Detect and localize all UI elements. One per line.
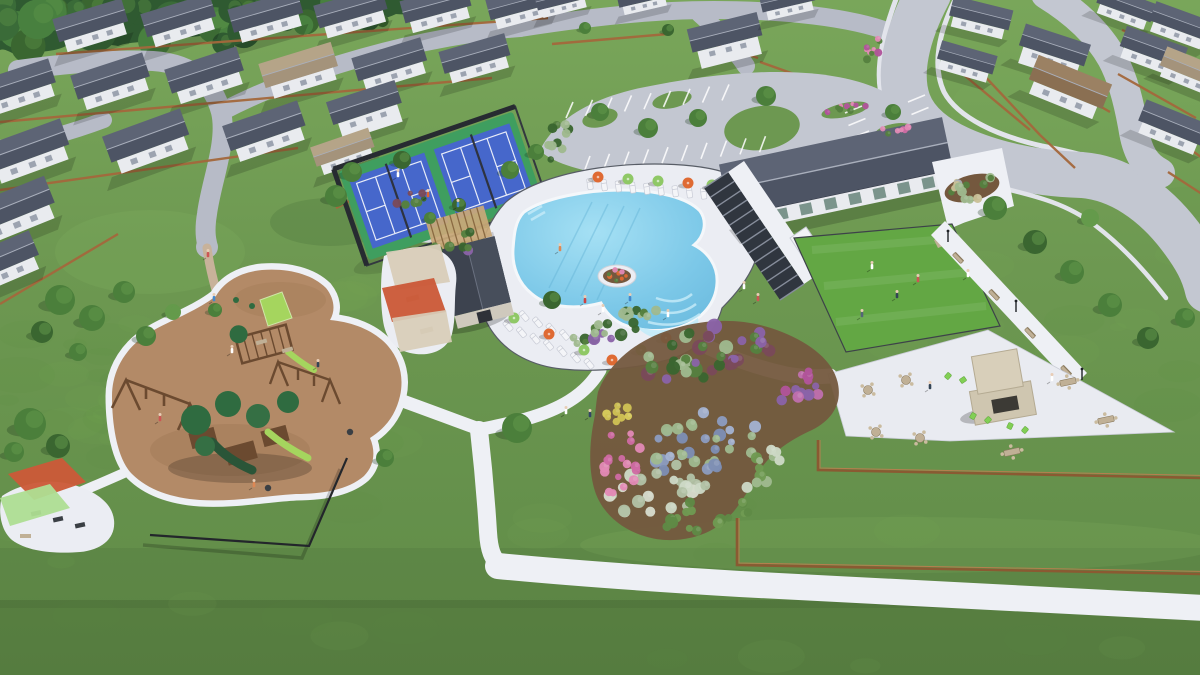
plant-highlight xyxy=(640,475,645,480)
plant xyxy=(666,517,678,529)
grass-mottle xyxy=(1004,624,1067,655)
chair xyxy=(878,424,882,428)
plant xyxy=(862,103,868,109)
plant xyxy=(601,330,608,337)
plant xyxy=(669,476,678,485)
round-table xyxy=(916,434,925,443)
grass-mottle xyxy=(507,518,569,549)
plant-highlight xyxy=(594,330,598,334)
plant-highlight xyxy=(677,424,682,429)
tree-highlight xyxy=(583,23,590,30)
chair xyxy=(880,434,884,438)
plant-highlight xyxy=(628,413,631,416)
plant-highlight xyxy=(556,122,560,126)
tree-highlight xyxy=(1182,310,1193,321)
plant-highlight xyxy=(969,197,973,201)
plant-highlight xyxy=(696,527,701,532)
umbrella-top xyxy=(583,349,586,352)
chair xyxy=(910,382,914,386)
rendering-canvas xyxy=(0,0,1200,675)
plant-highlight xyxy=(647,313,651,317)
plant xyxy=(661,424,673,436)
chair xyxy=(908,372,912,376)
umbrella-top xyxy=(611,359,614,362)
grass-mottle xyxy=(372,611,438,644)
plant xyxy=(666,361,680,375)
plant xyxy=(812,383,819,390)
plant-highlight xyxy=(908,126,910,128)
plant-highlight xyxy=(550,157,553,160)
tree-highlight xyxy=(1107,295,1120,308)
tree-highlight xyxy=(550,292,560,302)
sail-seating-area xyxy=(381,244,456,354)
plant xyxy=(392,199,401,208)
plant xyxy=(613,418,620,425)
plant-highlight xyxy=(759,471,764,476)
plant xyxy=(401,200,410,209)
plant xyxy=(742,482,753,493)
plant xyxy=(562,129,571,138)
tree-highlight xyxy=(534,145,543,154)
tree-highlight xyxy=(1145,329,1157,341)
round-table xyxy=(864,386,873,395)
plant-highlight xyxy=(877,37,880,40)
shade-canopy xyxy=(246,404,270,428)
plant xyxy=(600,467,610,477)
grass-mottle xyxy=(47,554,75,568)
umbrella-top xyxy=(627,178,630,181)
plant xyxy=(655,435,663,443)
chair xyxy=(914,442,918,446)
plant-highlight xyxy=(888,131,891,134)
plant-highlight xyxy=(742,499,746,503)
chair xyxy=(868,426,872,430)
grass-mottle xyxy=(647,648,688,669)
plant-highlight xyxy=(682,451,686,455)
plant xyxy=(582,339,588,345)
plant xyxy=(651,306,661,316)
umbrella-top xyxy=(687,182,690,185)
plant xyxy=(684,328,694,338)
shade-canopy xyxy=(215,391,241,417)
plant-highlight xyxy=(731,439,734,442)
tree-highlight xyxy=(513,415,530,432)
plant-highlight xyxy=(720,353,724,357)
plant xyxy=(717,416,727,426)
plant xyxy=(623,403,632,412)
chair xyxy=(922,430,926,434)
plant xyxy=(749,421,761,433)
shade-canopy xyxy=(195,436,215,456)
plant xyxy=(686,525,693,532)
plant-highlight xyxy=(760,338,765,343)
plant-highlight xyxy=(656,470,661,475)
spring-rider xyxy=(233,297,239,303)
plant-highlight xyxy=(565,121,569,125)
light-head xyxy=(1081,368,1084,371)
plant-highlight xyxy=(882,127,884,129)
umbrella-top xyxy=(548,333,551,336)
park-bench xyxy=(20,534,31,538)
plant-highlight xyxy=(617,403,620,406)
tree-highlight xyxy=(143,328,154,339)
grass-mottle xyxy=(331,276,381,301)
plant-highlight xyxy=(866,45,869,48)
plant xyxy=(744,508,753,517)
tree-highlight xyxy=(39,323,51,335)
plant xyxy=(869,51,874,56)
tree-highlight xyxy=(34,4,54,24)
plant xyxy=(645,507,655,517)
plant xyxy=(780,386,790,396)
plant xyxy=(627,430,634,437)
plant xyxy=(725,445,734,454)
tree-highlight xyxy=(213,304,221,312)
plant-highlight xyxy=(630,438,634,442)
chair xyxy=(870,382,874,386)
plant-highlight xyxy=(681,362,685,366)
plant-highlight xyxy=(651,362,657,368)
grass-mottle xyxy=(1115,308,1160,330)
plant xyxy=(731,355,739,363)
plant xyxy=(725,426,734,435)
chair xyxy=(912,432,916,436)
plant xyxy=(609,489,616,496)
plant-highlight xyxy=(611,433,614,436)
plant-highlight xyxy=(410,191,412,193)
plant-highlight xyxy=(626,461,630,465)
plant-highlight xyxy=(633,476,638,481)
light-head xyxy=(1015,300,1018,303)
plant xyxy=(607,272,611,276)
plant-highlight xyxy=(670,504,675,509)
plant-highlight xyxy=(638,497,644,503)
plant-highlight xyxy=(770,446,775,451)
plant-highlight xyxy=(616,279,618,281)
plant xyxy=(615,474,622,481)
shade-canopy xyxy=(277,391,299,413)
plant-highlight xyxy=(607,320,611,324)
trash-can xyxy=(265,485,271,491)
plant-highlight xyxy=(608,458,612,462)
plant xyxy=(620,277,624,281)
tree-highlight xyxy=(76,344,86,354)
plant xyxy=(899,127,904,132)
tree-highlight xyxy=(696,110,706,120)
plant xyxy=(752,477,762,487)
spring-rider xyxy=(249,303,255,309)
plant xyxy=(725,514,733,522)
grass-mottle xyxy=(850,658,880,673)
plant xyxy=(685,497,695,507)
plant-highlight xyxy=(685,482,691,488)
plant-highlight xyxy=(751,433,755,437)
tree-highlight xyxy=(56,287,73,304)
plant xyxy=(776,395,787,406)
lounge-chair xyxy=(672,185,679,197)
plant xyxy=(703,331,714,342)
aerial-rendering xyxy=(0,0,1200,675)
round-table xyxy=(902,376,911,385)
light-head xyxy=(947,230,950,233)
plant-highlight xyxy=(620,330,626,336)
chair xyxy=(872,392,876,396)
plant xyxy=(671,460,681,470)
plant xyxy=(620,308,627,315)
tree-highlight xyxy=(88,307,102,321)
plant-highlight xyxy=(754,345,758,349)
plant xyxy=(874,49,882,57)
grass-mottle xyxy=(693,543,739,566)
tree-highlight xyxy=(428,213,435,220)
plant xyxy=(835,105,840,110)
tree-highlight xyxy=(171,305,180,314)
trash-can xyxy=(347,429,353,435)
plant-highlight xyxy=(577,341,580,344)
plant-highlight xyxy=(611,336,614,339)
plant-highlight xyxy=(983,181,987,185)
tree-highlight xyxy=(891,105,900,114)
plant-highlight xyxy=(616,409,620,413)
tree-highlight xyxy=(598,104,608,114)
plant xyxy=(618,455,625,462)
plant-highlight xyxy=(827,110,829,112)
plant xyxy=(988,175,994,181)
round-table xyxy=(872,428,881,437)
chair xyxy=(862,394,866,398)
plant xyxy=(626,307,632,313)
chair xyxy=(870,436,874,440)
lounge-chair xyxy=(601,179,608,191)
plant-highlight xyxy=(959,183,963,187)
plant xyxy=(756,457,763,464)
plant xyxy=(687,506,696,515)
grass-mottle xyxy=(874,514,940,547)
plant-highlight xyxy=(716,436,720,440)
umbrella-top xyxy=(657,180,660,183)
shade-canopy xyxy=(181,405,211,435)
plant xyxy=(681,366,692,377)
plant xyxy=(714,360,725,371)
plant-highlight xyxy=(694,457,699,462)
umbrella-top xyxy=(513,317,516,320)
grass-mottle xyxy=(738,640,805,674)
plant-highlight xyxy=(705,435,709,439)
tree-highlight xyxy=(1088,210,1098,220)
tree-highlight xyxy=(349,164,360,175)
tree-highlight xyxy=(666,25,673,32)
plant-highlight xyxy=(623,484,626,487)
plant-highlight xyxy=(705,482,709,486)
plant-highlight xyxy=(648,353,653,358)
plant-highlight xyxy=(690,420,695,425)
plant xyxy=(662,374,672,384)
plant-highlight xyxy=(717,519,722,524)
tree-highlight xyxy=(1069,262,1082,275)
plant-highlight xyxy=(656,454,661,459)
grass-mottle xyxy=(168,592,217,616)
grass-mottle xyxy=(1099,636,1146,659)
plant xyxy=(635,443,645,453)
plant-highlight xyxy=(681,488,686,493)
plant xyxy=(863,55,871,63)
plant-highlight xyxy=(977,195,981,199)
plant-highlight xyxy=(647,492,652,497)
tree-highlight xyxy=(55,436,68,449)
plant-highlight xyxy=(671,341,676,346)
plant-highlight xyxy=(797,393,802,398)
tree-highlight xyxy=(333,187,345,199)
plant xyxy=(418,189,426,197)
plant-highlight xyxy=(449,243,454,248)
plant-highlight xyxy=(703,409,708,414)
plant-highlight xyxy=(702,343,706,347)
plant xyxy=(548,123,558,133)
tree-highlight xyxy=(11,444,22,455)
tree-highlight xyxy=(645,120,656,131)
plant-highlight xyxy=(573,335,576,338)
tree-highlight xyxy=(400,152,410,162)
chair xyxy=(924,440,928,444)
plant xyxy=(805,367,813,375)
tree-highlight xyxy=(121,283,133,295)
plant-highlight xyxy=(964,196,968,200)
plant-highlight xyxy=(850,108,853,111)
plant-highlight xyxy=(715,446,719,450)
plant-highlight xyxy=(714,460,720,466)
grass-mottle xyxy=(53,599,121,633)
chair xyxy=(860,384,864,388)
plant xyxy=(853,102,858,107)
tree-highlight xyxy=(1032,232,1045,245)
fireplace-chimney xyxy=(971,349,1023,394)
plant xyxy=(619,269,624,274)
tree-highlight xyxy=(26,410,44,428)
chair xyxy=(900,384,904,388)
tree-highlight xyxy=(763,88,774,99)
tree-highlight xyxy=(992,198,1005,211)
tree-highlight xyxy=(383,450,393,460)
plant xyxy=(624,274,628,278)
plant xyxy=(691,359,699,367)
plant-highlight xyxy=(414,199,418,203)
plant-highlight xyxy=(669,453,673,457)
plant-highlight xyxy=(873,48,875,50)
grass-mottle xyxy=(261,600,332,636)
plant xyxy=(628,318,638,328)
plant xyxy=(594,320,603,329)
plant xyxy=(618,505,630,517)
plant-highlight xyxy=(635,463,639,467)
plant xyxy=(464,244,471,251)
plant-highlight xyxy=(607,415,610,418)
chair xyxy=(898,374,902,378)
tree-highlight xyxy=(508,162,518,172)
umbrella-top xyxy=(597,176,600,179)
plant-highlight xyxy=(469,229,473,233)
plant-highlight xyxy=(754,334,758,338)
plant xyxy=(737,336,746,345)
plant xyxy=(547,141,557,151)
